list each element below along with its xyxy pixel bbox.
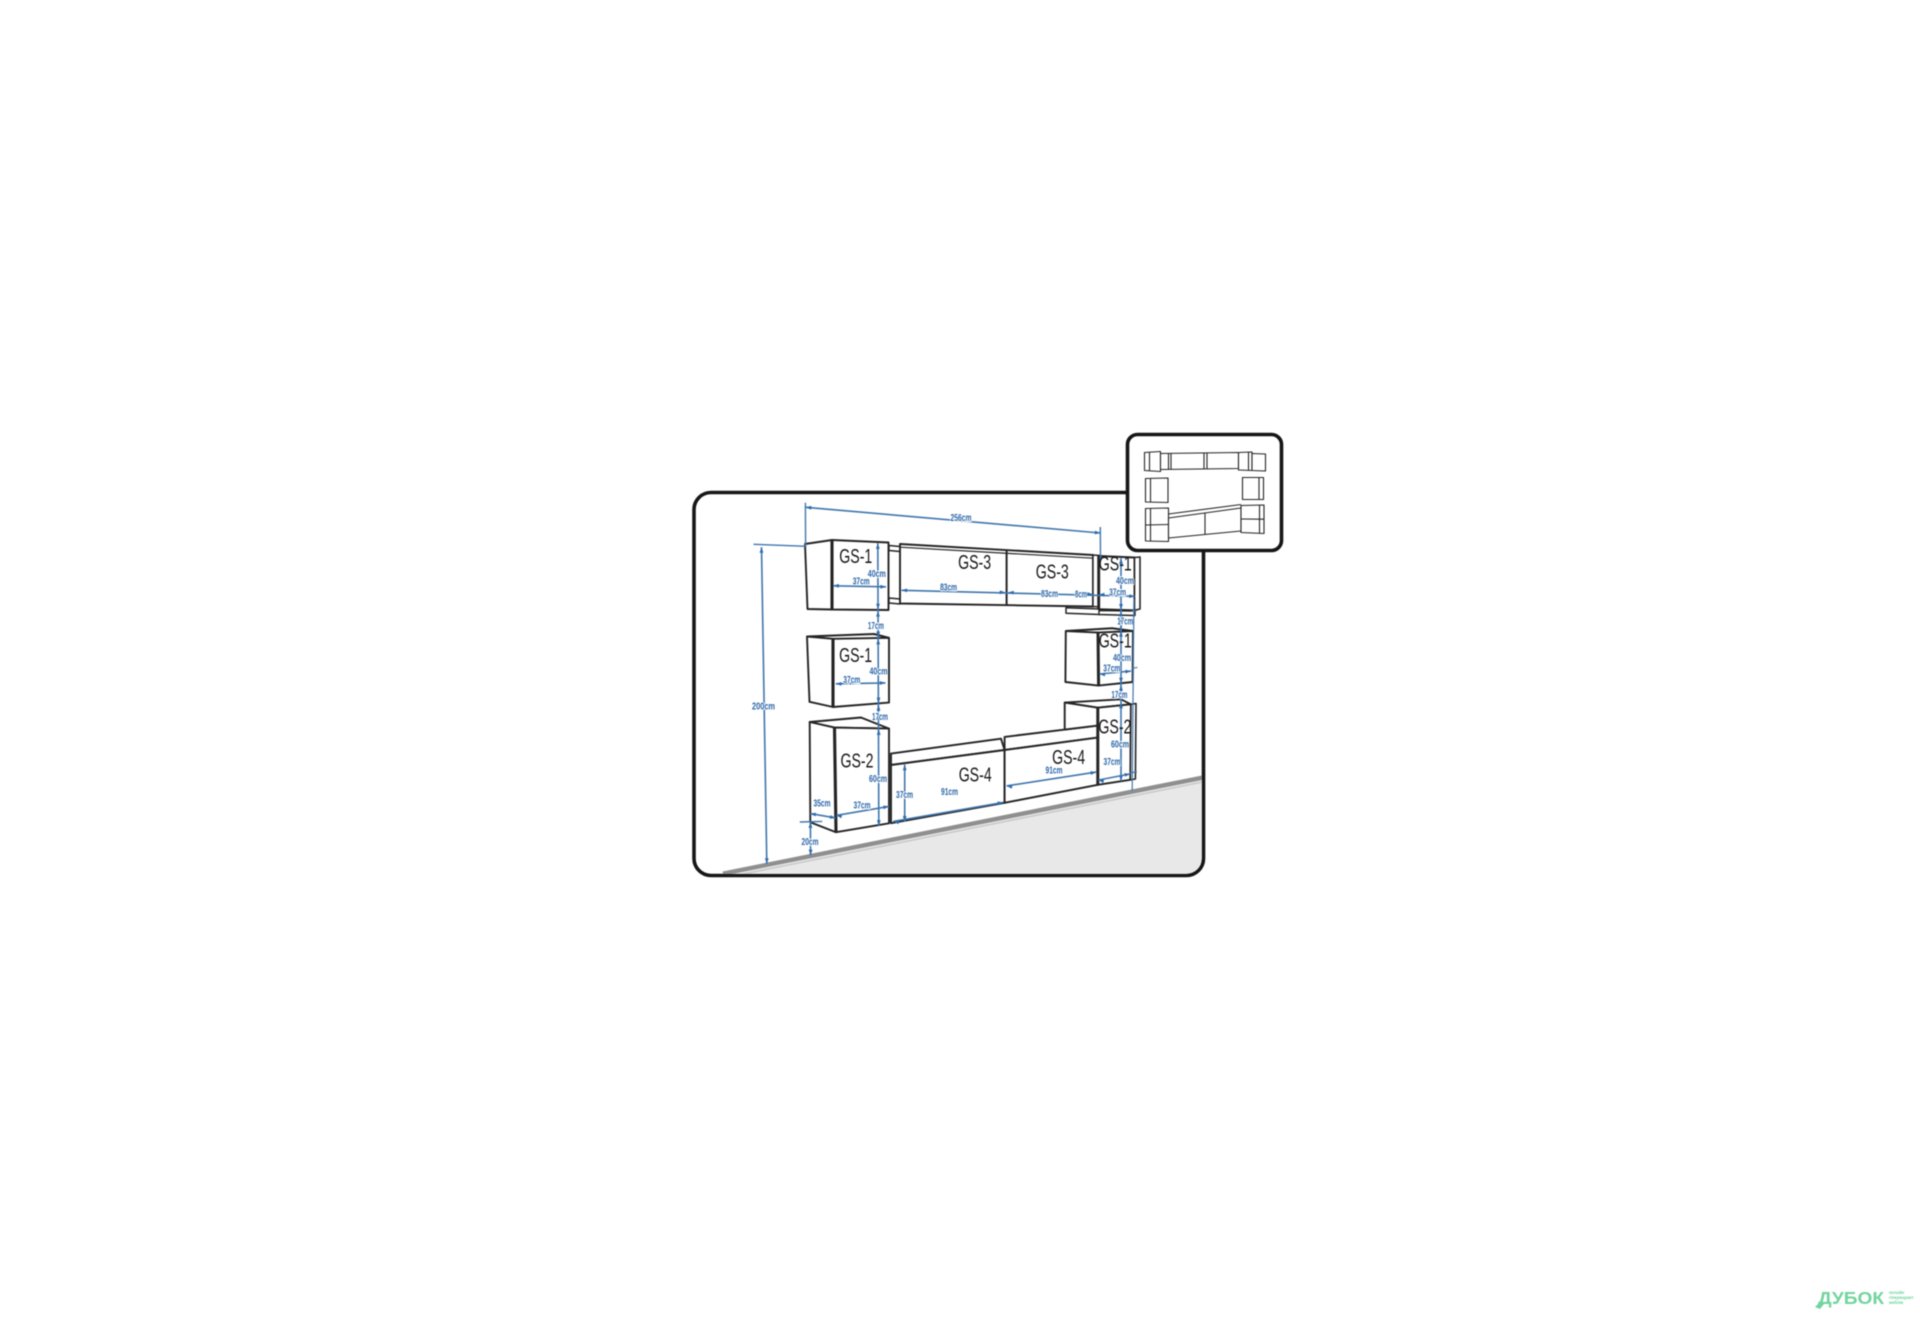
svg-text:83cm: 83cm bbox=[1041, 588, 1058, 600]
svg-text:GS-2: GS-2 bbox=[841, 751, 874, 773]
svg-text:20cm: 20cm bbox=[802, 836, 819, 848]
svg-text:60cm: 60cm bbox=[869, 773, 887, 785]
svg-text:17cm: 17cm bbox=[872, 711, 888, 723]
svg-text:40cm: 40cm bbox=[870, 666, 888, 678]
svg-text:37cm: 37cm bbox=[843, 674, 860, 686]
svg-text:GS-1: GS-1 bbox=[1099, 553, 1132, 575]
svg-text:GS-3: GS-3 bbox=[958, 552, 991, 574]
svg-text:37cm: 37cm bbox=[896, 789, 913, 801]
svg-text:17cm: 17cm bbox=[868, 620, 884, 632]
svg-text:GS-2: GS-2 bbox=[1098, 717, 1131, 739]
svg-text:17cm: 17cm bbox=[1117, 615, 1133, 627]
svg-text:GS-1: GS-1 bbox=[1099, 630, 1132, 652]
svg-text:8cm: 8cm bbox=[1075, 588, 1087, 600]
svg-text:37cm: 37cm bbox=[1103, 663, 1120, 675]
svg-text:40cm: 40cm bbox=[1116, 575, 1134, 587]
svg-text:91cm: 91cm bbox=[941, 786, 958, 798]
svg-text:37cm: 37cm bbox=[1104, 756, 1121, 768]
svg-text:40cm: 40cm bbox=[868, 568, 886, 580]
svg-text:83cm: 83cm bbox=[940, 581, 957, 593]
svg-text:37cm: 37cm bbox=[853, 576, 870, 588]
svg-text:256cm: 256cm bbox=[951, 512, 972, 524]
svg-text:GS-4: GS-4 bbox=[1052, 747, 1085, 769]
svg-text:35cm: 35cm bbox=[814, 797, 831, 809]
svg-text:60cm: 60cm bbox=[1111, 739, 1129, 751]
svg-text:GS-1: GS-1 bbox=[839, 645, 872, 667]
svg-text:ДУБОК: ДУБОК bbox=[1818, 1288, 1884, 1308]
svg-text:200cm: 200cm bbox=[752, 701, 775, 713]
svg-text:GS-1: GS-1 bbox=[839, 546, 872, 568]
svg-text:GS-3: GS-3 bbox=[1036, 562, 1069, 584]
svg-text:GS-4: GS-4 bbox=[959, 765, 992, 787]
svg-text:меблів: меблів bbox=[1889, 1300, 1904, 1305]
svg-text:37cm: 37cm bbox=[1109, 587, 1126, 599]
svg-text:17cm: 17cm bbox=[1111, 689, 1127, 701]
svg-text:37cm: 37cm bbox=[854, 800, 871, 812]
